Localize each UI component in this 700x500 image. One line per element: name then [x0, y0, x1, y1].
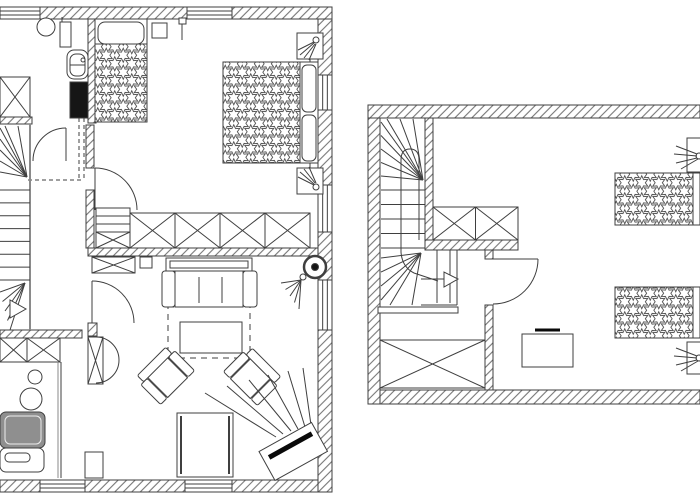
double-bed-pillow-2	[302, 115, 316, 161]
wardrobe-lower	[380, 340, 485, 388]
sofa-seat	[175, 271, 243, 307]
outer-wall-bottom	[380, 390, 700, 404]
living-wall	[88, 248, 318, 256]
kitchen-tall-cabinet	[88, 337, 103, 384]
sofa-back	[166, 258, 252, 271]
hall-cabinet-b	[92, 257, 135, 273]
window-right-1	[318, 75, 332, 110]
ceiling-lamp-center	[312, 264, 319, 271]
partition-wall	[485, 305, 493, 390]
wardrobe-row	[130, 213, 310, 248]
partition-stub	[485, 250, 493, 259]
window-stub-box	[179, 18, 186, 24]
outer-wall-bottom-2	[85, 480, 185, 492]
kitchen-door-stub	[88, 323, 97, 336]
water-heater	[70, 82, 88, 118]
kitchen-side-box	[85, 452, 103, 478]
sink-faucet	[81, 58, 85, 62]
window-bottom-2	[185, 480, 232, 492]
double-bed-pillow-1	[302, 65, 316, 112]
hall-cabinet-a	[96, 232, 130, 248]
side-table	[177, 413, 233, 477]
ceiling-lamp-bulb	[300, 274, 306, 280]
wall-lamp-lower	[297, 163, 323, 194]
window-top-1	[0, 7, 40, 19]
outer-wall-right-4	[318, 330, 332, 492]
hall-wall-lower	[86, 190, 94, 248]
window-bottom-1	[40, 480, 85, 492]
desk	[522, 334, 573, 367]
kitchen-cabinet-2	[27, 338, 60, 362]
sofa-arm-right	[243, 271, 257, 307]
bath-cabinet	[60, 22, 71, 47]
round-basin	[37, 18, 55, 36]
bed-a-blanket	[615, 173, 693, 225]
hall-wall-upper	[86, 125, 94, 168]
burner-small	[28, 370, 42, 384]
outer-wall-left	[368, 118, 380, 404]
kitchen-cabinet-1	[0, 338, 27, 362]
window-top-2	[187, 7, 232, 19]
kitchen-drawer-handle	[5, 453, 30, 462]
wall-lamp-upper	[297, 33, 323, 62]
wardrobe-upper	[433, 207, 518, 240]
hall-box	[140, 257, 152, 268]
stair-top-wall	[0, 117, 32, 124]
outer-wall-bottom-1	[0, 480, 40, 492]
nightstand	[152, 23, 167, 38]
stair-landing	[378, 307, 458, 313]
double-bed-blanket	[223, 62, 300, 163]
single-bed-blanket	[95, 44, 147, 122]
floor-plan-canvas	[0, 0, 700, 500]
hall-shelf	[96, 208, 130, 232]
single-bed-pillow	[98, 22, 144, 44]
window-right-3	[318, 280, 332, 330]
kitchen-wall	[0, 330, 82, 338]
outer-wall-bottom-3	[232, 480, 318, 492]
outer-wall-top	[368, 105, 700, 118]
sofa-arm-left	[162, 271, 175, 307]
stair-wall-vertical	[425, 118, 433, 240]
burner-large	[20, 388, 42, 410]
stair-shaft	[0, 77, 30, 117]
stair-wall-horizontal	[425, 240, 518, 250]
outer-wall-top-2	[232, 7, 332, 19]
coffee-table	[180, 322, 242, 353]
floor-plan-stage	[0, 0, 700, 500]
bed-b-blanket	[615, 287, 693, 338]
